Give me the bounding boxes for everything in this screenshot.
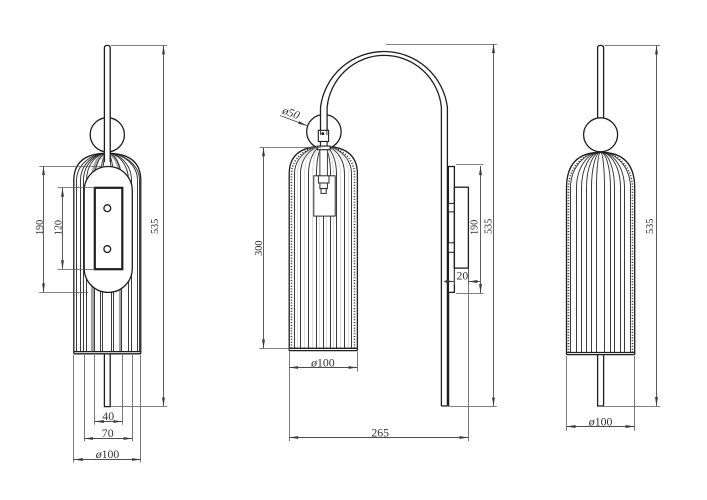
svg-text:20: 20 [457,269,469,283]
svg-text:190: 190 [35,220,46,235]
svg-text:ø100: ø100 [310,355,335,369]
svg-text:535: 535 [150,219,161,234]
svg-text:535: 535 [483,219,494,234]
svg-text:70: 70 [102,426,114,440]
svg-text:300: 300 [254,241,265,256]
svg-text:265: 265 [371,425,389,439]
svg-text:535: 535 [645,219,656,234]
svg-text:40: 40 [102,409,114,423]
svg-text:ø100: ø100 [588,414,613,428]
svg-text:120: 120 [53,220,64,235]
svg-text:190: 190 [470,220,481,235]
svg-text:ø100: ø100 [95,447,120,461]
